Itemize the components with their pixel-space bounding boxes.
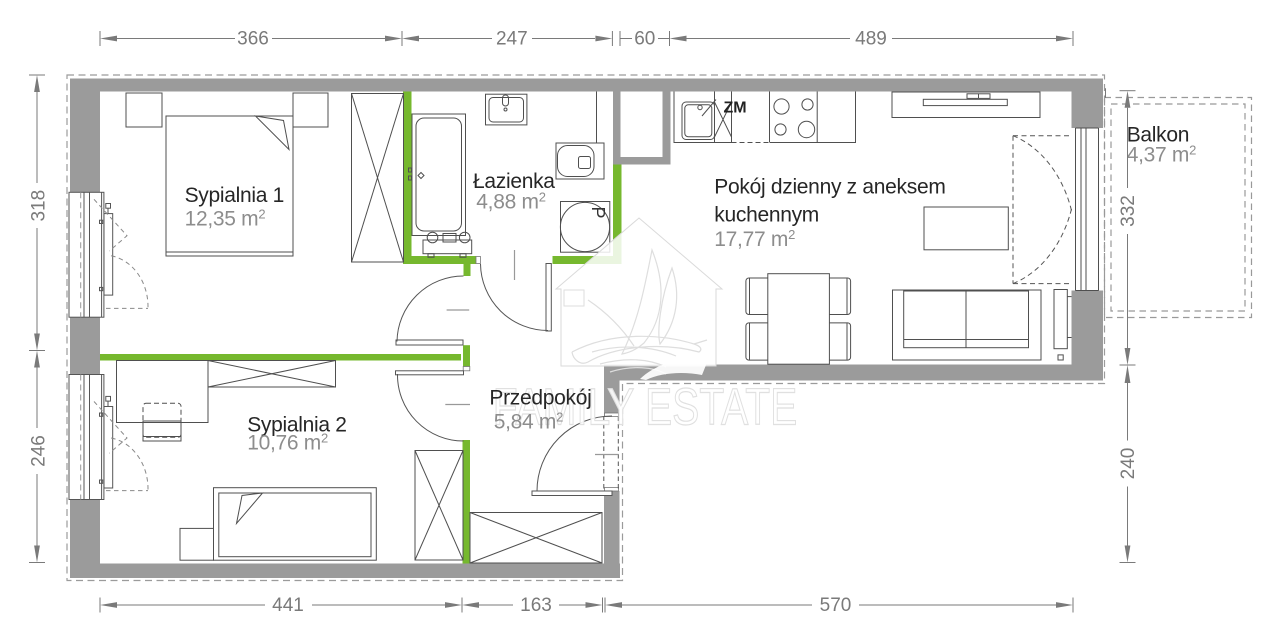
- svg-text:441: 441: [272, 595, 304, 616]
- svg-text:Sypialnia 1: Sypialnia 1: [185, 184, 284, 207]
- svg-text:5,84 m2: 5,84 m2: [494, 410, 563, 434]
- svg-text:60: 60: [634, 29, 655, 50]
- svg-text:4,37 m2: 4,37 m2: [1127, 143, 1196, 167]
- svg-text:318: 318: [29, 190, 50, 222]
- svg-text:Przedpokój: Przedpokój: [489, 387, 591, 410]
- svg-text:17,77 m2: 17,77 m2: [714, 227, 795, 251]
- svg-text:kuchennym: kuchennym: [714, 204, 819, 227]
- svg-text:332: 332: [1118, 195, 1139, 227]
- svg-text:ZM: ZM: [724, 100, 747, 117]
- svg-text:10,76 m2: 10,76 m2: [247, 431, 328, 455]
- svg-text:366: 366: [237, 29, 269, 50]
- svg-text:246: 246: [29, 435, 50, 467]
- svg-text:P: P: [588, 207, 608, 219]
- svg-text:240: 240: [1118, 448, 1139, 480]
- svg-text:570: 570: [820, 595, 852, 616]
- svg-text:4,88 m2: 4,88 m2: [476, 190, 545, 214]
- svg-text:247: 247: [496, 29, 528, 50]
- svg-text:163: 163: [520, 595, 552, 616]
- svg-text:12,35 m2: 12,35 m2: [185, 207, 266, 231]
- svg-text:489: 489: [855, 29, 887, 50]
- svg-text:Pokój dzienny z aneksem: Pokój dzienny z aneksem: [714, 176, 945, 199]
